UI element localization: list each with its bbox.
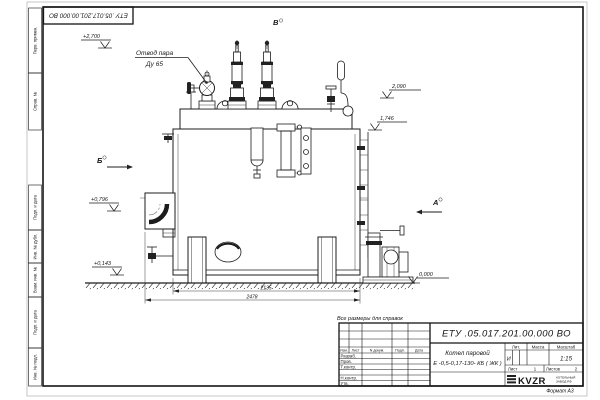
margin-column: Перв. примен. Справ. № Подп. и дата Инв.…	[29, 8, 42, 386]
margin-label-perv-primen: Перв. примен.	[33, 27, 38, 55]
format-note: Формат А3	[546, 389, 574, 395]
tb-col-ndokum: N докум.	[370, 349, 385, 353]
view-b-left-label: Б	[97, 156, 103, 165]
tb-col-izm: Изм.	[340, 349, 348, 353]
tb-row-utv: Утв.	[341, 381, 349, 386]
header-right-fittings	[326, 61, 353, 116]
left-nozzle	[162, 134, 174, 143]
view-b-label: В	[273, 18, 279, 27]
tb-mass-label: Масса	[532, 344, 545, 349]
tb-scale-value: 1:15	[560, 356, 573, 363]
boiler-drawing	[85, 40, 415, 289]
tb-sheets-value: 2	[575, 367, 578, 372]
elevation-2700: +2,700	[83, 34, 101, 40]
fan-unit	[363, 226, 413, 283]
steam-outlet-label-line2: Ду 65	[145, 61, 163, 68]
dim-width-value: 2135	[259, 286, 271, 292]
tb-lit-value: И	[507, 357, 511, 363]
steam-outlet-label-line1: Отвод пара	[136, 49, 174, 57]
margin-label-vzam-inv: Взам. инв. №	[33, 267, 38, 293]
drain-valve	[147, 247, 173, 263]
margin-label-inv-podl: Инв. № подл.	[33, 354, 38, 380]
tb-col-list: Лист	[352, 349, 360, 353]
tb-col-podp: Подп.	[395, 349, 405, 353]
factory-logo-text: KVZR	[518, 376, 546, 387]
margin-label-inv-dubl: Инв. № дубл.	[33, 234, 38, 260]
tb-row-prov: Пров.	[341, 359, 352, 364]
elevation-1746: 1,746	[380, 116, 395, 122]
safety-valve-1	[228, 41, 246, 109]
gauge-column	[301, 128, 311, 174]
tb-sheet-label: Лист	[508, 367, 517, 372]
tb-scale-label: Масштаб	[557, 344, 576, 349]
reference-note: Все размеры для справок	[337, 316, 403, 322]
tb-product-line1: Котел паровой	[445, 350, 490, 357]
drawing-sheet: Перв. примен. Справ. № Подп. и дата Инв.…	[0, 0, 600, 400]
elevation-2090: 2,090	[391, 84, 407, 90]
tb-lit-label: Лит.	[512, 344, 520, 349]
elevation-0143: +0,143	[94, 261, 112, 267]
elevation-0000: 0,000	[419, 272, 434, 278]
tb-row-razrab: Разраб.	[341, 354, 356, 359]
top-left-stamp: ЕТУ .05.017.201.00.000 ВО	[44, 7, 134, 24]
margin-label-podp-data-1: Подп. и дата	[33, 194, 38, 219]
tb-sheet-value: 1	[534, 367, 537, 372]
view-a-label: А	[432, 198, 438, 207]
title-block: Изм. Лист N докум. Подп. Дата Разраб. Пр…	[339, 323, 583, 387]
manhole	[215, 242, 241, 262]
tb-col-data: Дата	[415, 349, 423, 353]
margin-label-podp-data-2: Подп. и дата	[33, 309, 38, 334]
tb-sheets-label: Листов	[546, 367, 561, 372]
elevation-0796: +0,796	[91, 197, 109, 203]
dim-total-value: 2478	[245, 295, 257, 301]
tb-row-nkontr: Н.контр.	[341, 376, 358, 381]
margin-label-sprav-no: Справ. №	[33, 91, 38, 111]
safety-valve-2	[258, 41, 276, 109]
ground-line	[85, 283, 415, 289]
tb-row-tkontr: Т.контр.	[341, 365, 357, 370]
stamp-doc-number: ЕТУ .05.017.201.00.000 ВО	[49, 12, 128, 19]
burner-unit	[145, 193, 175, 237]
factory-caption-line2: ЗАВОД РФ	[556, 380, 572, 384]
tb-product-line2: Е -0,5-0,17-130- КБ ( ЖК )	[433, 361, 502, 367]
steam-drum-casing	[180, 109, 352, 129]
tb-doc-number: ЕТУ .05.017.201.00.000 ВО	[442, 329, 571, 340]
